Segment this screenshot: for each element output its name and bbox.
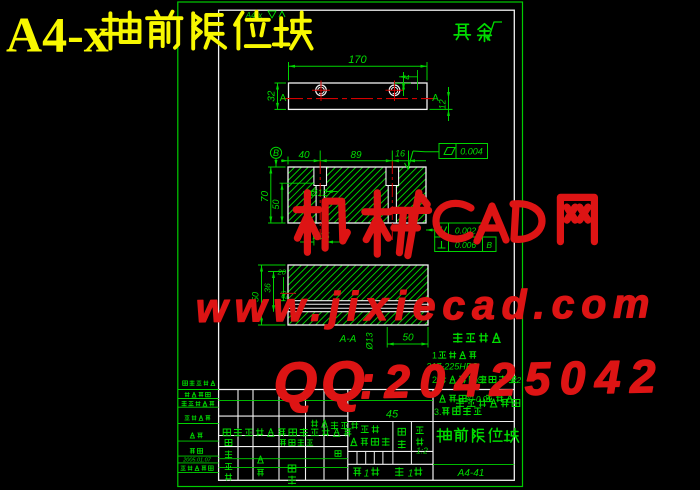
svg-text:B: B <box>273 148 279 158</box>
svg-text:Ø12: Ø12 <box>309 188 327 198</box>
svg-text:170: 170 <box>348 54 367 66</box>
svg-text:0.004: 0.004 <box>460 147 483 157</box>
svg-text:89: 89 <box>350 150 362 161</box>
svg-text:20: 20 <box>277 268 287 277</box>
svg-text:QQ: QQ <box>273 349 369 414</box>
svg-text:Ø13: Ø13 <box>365 332 375 350</box>
svg-text:A4-41: A4-41 <box>457 468 485 479</box>
svg-text:45: 45 <box>386 409 399 421</box>
svg-text:2005.01.07: 2005.01.07 <box>182 458 211 464</box>
svg-text:A4-x: A4-x <box>6 7 109 63</box>
svg-text:3.: 3. <box>434 407 442 417</box>
svg-text:40: 40 <box>298 150 310 161</box>
svg-text:32: 32 <box>267 90 278 102</box>
svg-text:16: 16 <box>395 149 405 159</box>
svg-text:A: A <box>280 93 287 104</box>
svg-text:A-A: A-A <box>339 334 357 345</box>
svg-text:50: 50 <box>271 199 281 209</box>
svg-text:www.jixiecad.com: www.jixiecad.com <box>196 280 657 331</box>
svg-text:B: B <box>486 240 492 250</box>
svg-text:1: 1 <box>408 469 414 480</box>
svg-text:1: 1 <box>364 469 370 480</box>
svg-text:12: 12 <box>437 99 447 109</box>
svg-text:1:2: 1:2 <box>416 446 428 456</box>
svg-text:70: 70 <box>260 191 271 203</box>
svg-text:50: 50 <box>402 333 414 344</box>
svg-text:4: 4 <box>406 75 410 82</box>
svg-text::20425042: :20425042 <box>359 350 666 408</box>
